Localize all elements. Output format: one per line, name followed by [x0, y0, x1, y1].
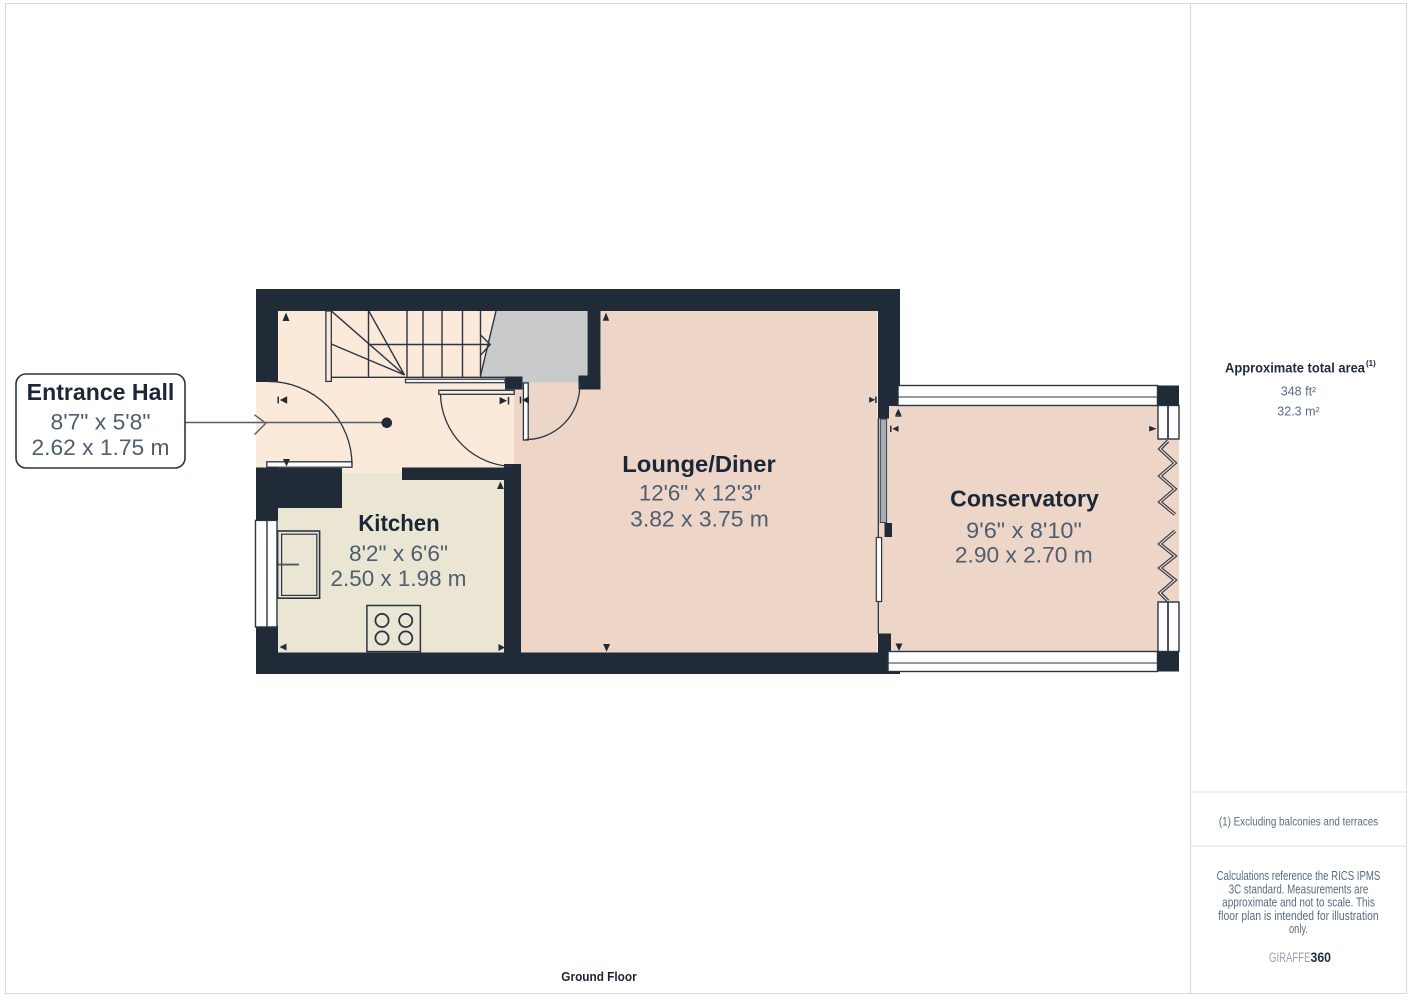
svg-text:3.82 x 3.75 m: 3.82 x 3.75 m [630, 507, 769, 532]
svg-text:floor plan is intended for ill: floor plan is intended for illustration [1218, 909, 1378, 923]
svg-text:2.90 x 2.70 m: 2.90 x 2.70 m [955, 543, 1093, 568]
svg-text:3C standard. Measurements are: 3C standard. Measurements are [1229, 882, 1369, 896]
svg-text:Approximate total area: Approximate total area [1225, 360, 1365, 376]
svg-text:Entrance Hall: Entrance Hall [27, 379, 175, 405]
svg-text:Ground Floor: Ground Floor [561, 970, 637, 984]
svg-text:only.: only. [1289, 922, 1308, 936]
svg-text:GIRAFFE: GIRAFFE [1269, 950, 1311, 965]
svg-text:(1) Excluding balconies and te: (1) Excluding balconies and terraces [1219, 815, 1378, 829]
svg-text:Lounge/Diner: Lounge/Diner [622, 451, 776, 477]
svg-text:Kitchen: Kitchen [358, 510, 440, 536]
svg-text:8'2" x 6'6": 8'2" x 6'6" [349, 541, 448, 566]
svg-text:Conservatory: Conservatory [950, 485, 1099, 511]
svg-text:360: 360 [1311, 950, 1332, 965]
svg-text:32.3 m²: 32.3 m² [1277, 405, 1319, 419]
svg-text:348 ft²: 348 ft² [1281, 384, 1316, 398]
svg-text:Calculations reference the RIC: Calculations reference the RICS IPMS [1217, 869, 1381, 883]
svg-text:approximate and not to scale.: approximate and not to scale. This [1222, 896, 1375, 910]
svg-text:12'6" x 12'3": 12'6" x 12'3" [639, 481, 761, 506]
svg-text:(1): (1) [1366, 359, 1376, 368]
svg-text:9'6" x 8'10": 9'6" x 8'10" [966, 518, 1082, 543]
svg-text:2.50 x 1.98 m: 2.50 x 1.98 m [331, 566, 467, 591]
svg-text:8'7" x 5'8": 8'7" x 5'8" [51, 410, 151, 435]
svg-text:2.62 x 1.75 m: 2.62 x 1.75 m [32, 435, 170, 460]
